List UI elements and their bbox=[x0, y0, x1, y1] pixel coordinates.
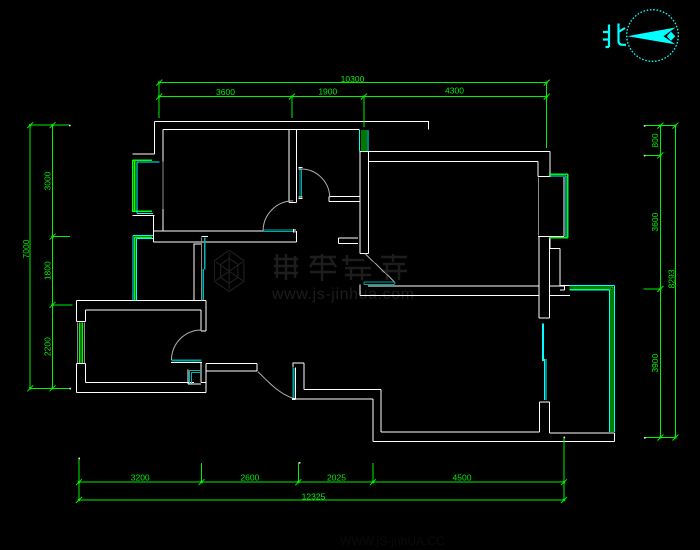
svg-text:7000: 7000 bbox=[21, 239, 31, 258]
svg-text:10300: 10300 bbox=[341, 74, 365, 84]
svg-text:800: 800 bbox=[650, 133, 660, 147]
svg-text:1800: 1800 bbox=[43, 261, 53, 280]
svg-text:3600: 3600 bbox=[650, 212, 660, 231]
svg-text:8293: 8293 bbox=[666, 269, 676, 288]
svg-text:WWW.jS-jnhUA.CC: WWW.jS-jnhUA.CC bbox=[340, 534, 445, 548]
svg-text:3200: 3200 bbox=[131, 472, 150, 482]
svg-text:2025: 2025 bbox=[327, 472, 346, 482]
svg-text:2600: 2600 bbox=[240, 472, 259, 482]
svg-text:4500: 4500 bbox=[453, 472, 472, 482]
svg-text:3900: 3900 bbox=[650, 353, 660, 372]
svg-text:www.js-jinhua.com: www.js-jinhua.com bbox=[271, 286, 415, 303]
svg-text:2200: 2200 bbox=[43, 337, 53, 356]
svg-text:3600: 3600 bbox=[216, 87, 235, 97]
svg-text:12325: 12325 bbox=[302, 492, 326, 502]
svg-text:1900: 1900 bbox=[318, 87, 337, 97]
svg-text:4300: 4300 bbox=[445, 86, 464, 96]
svg-text:3000: 3000 bbox=[43, 171, 53, 190]
